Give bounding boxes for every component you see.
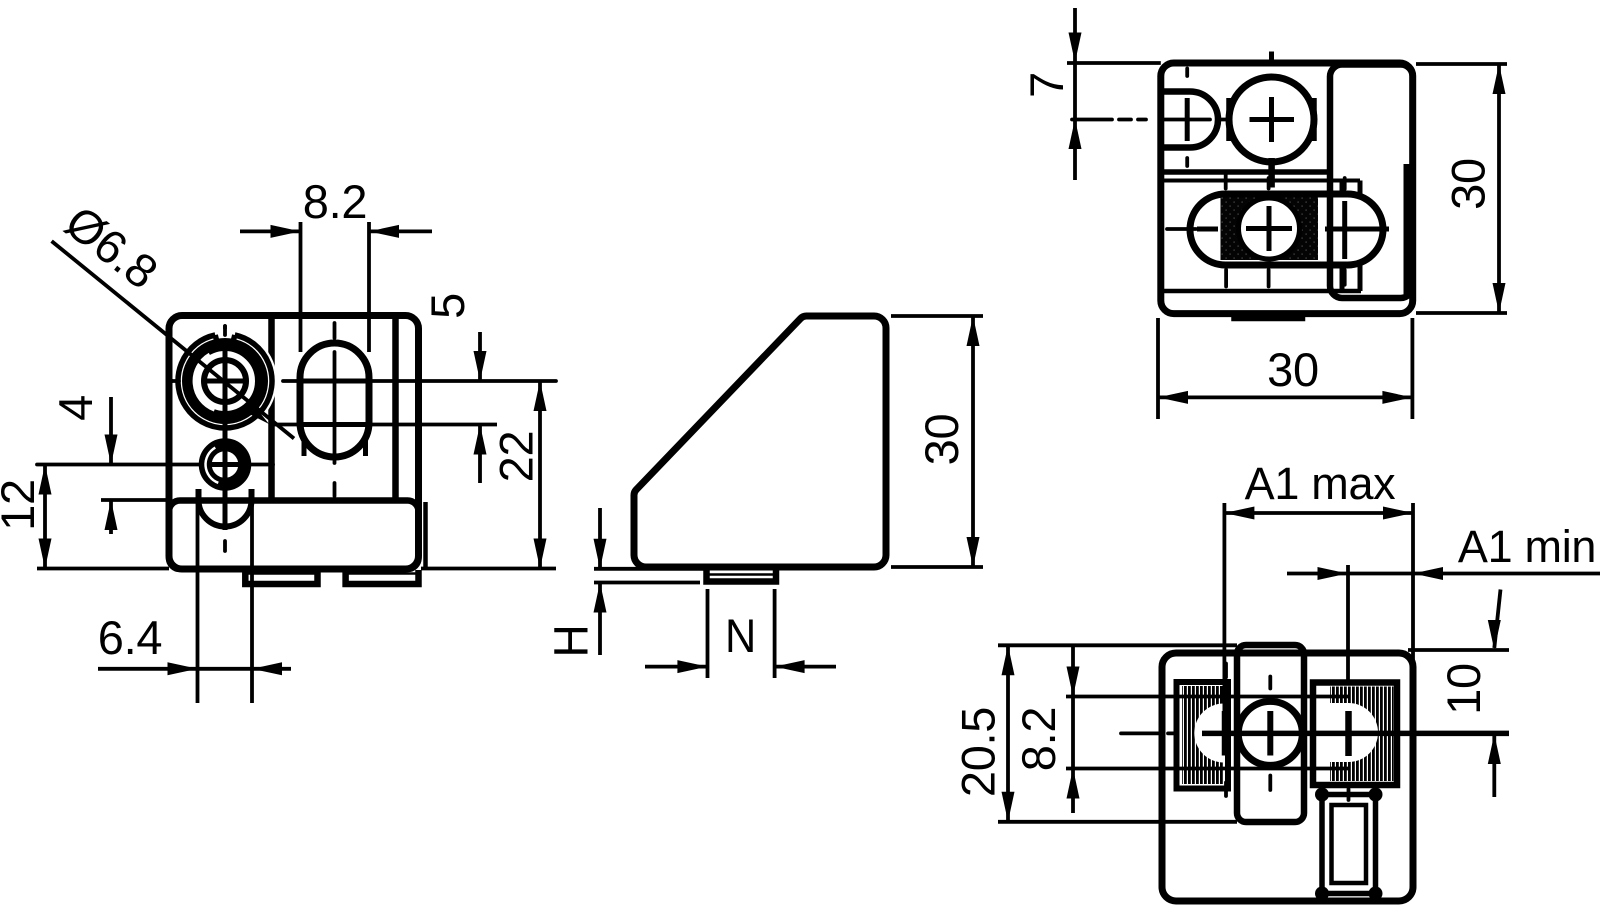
svg-text:30: 30 <box>1267 343 1319 396</box>
svg-text:8.2: 8.2 <box>303 175 367 228</box>
svg-text:7: 7 <box>1020 72 1073 98</box>
svg-text:30: 30 <box>1442 158 1495 210</box>
svg-text:N: N <box>725 609 756 662</box>
svg-text:10: 10 <box>1437 663 1490 715</box>
svg-text:12: 12 <box>0 479 44 531</box>
svg-text:A1 max: A1 max <box>1245 458 1397 509</box>
svg-text:H: H <box>546 625 599 658</box>
svg-text:30: 30 <box>915 414 968 466</box>
svg-text:5: 5 <box>421 293 474 319</box>
svg-text:A1 min: A1 min <box>1458 521 1596 572</box>
svg-text:22: 22 <box>490 431 543 483</box>
svg-text:4: 4 <box>49 395 102 421</box>
svg-text:6.4: 6.4 <box>98 611 162 664</box>
svg-text:20.5: 20.5 <box>952 707 1005 797</box>
svg-text:8.2: 8.2 <box>1012 707 1065 771</box>
